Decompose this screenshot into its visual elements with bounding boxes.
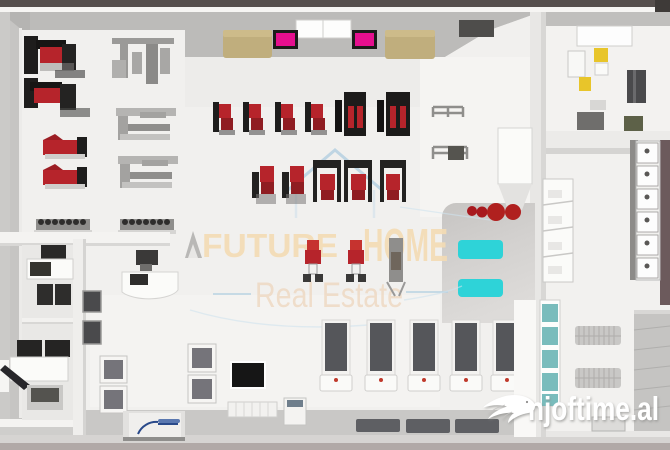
- svg-text:HOME: HOME: [363, 219, 448, 271]
- svg-text:Real Estate: Real Estate: [255, 276, 403, 315]
- svg-text:njoftime.al: njoftime.al: [528, 390, 659, 427]
